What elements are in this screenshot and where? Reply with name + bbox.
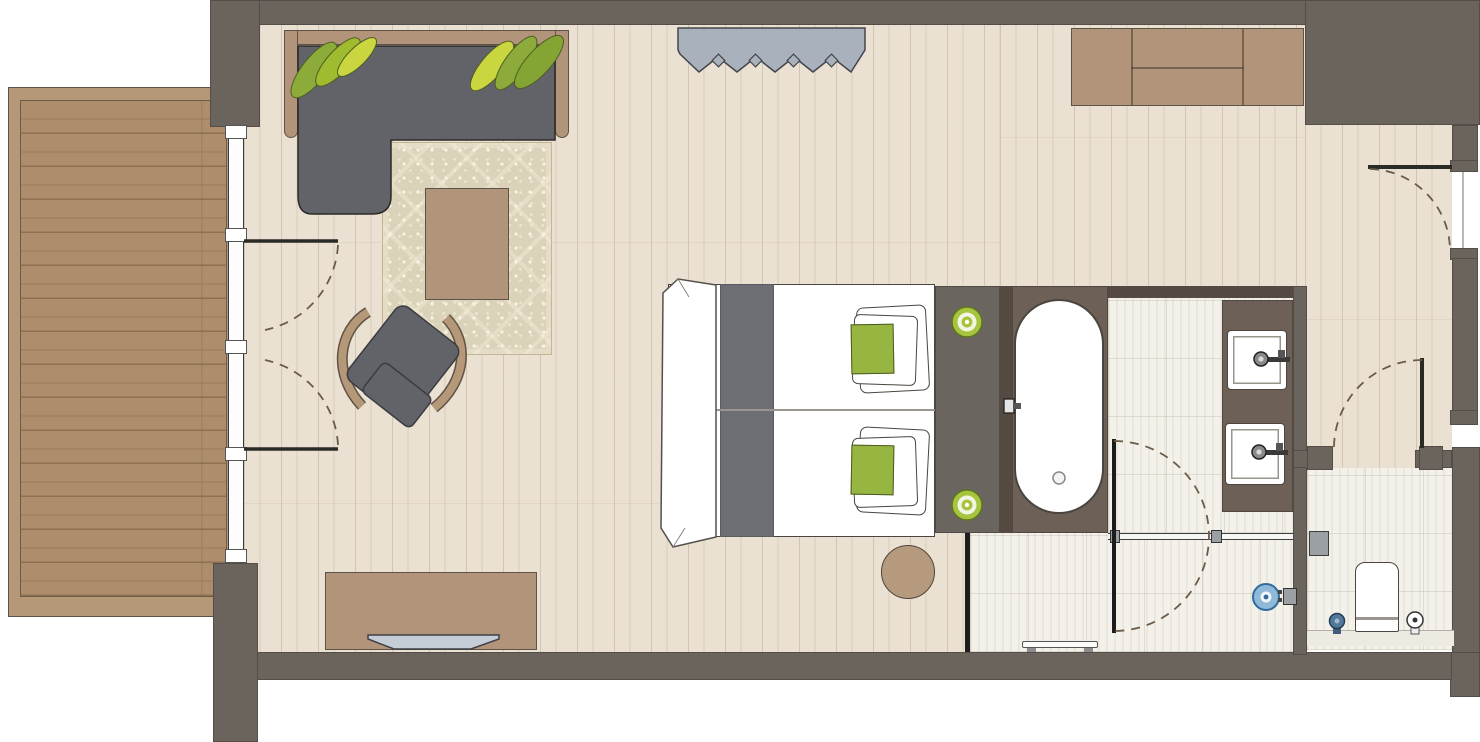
lamp-center: [965, 503, 969, 507]
drain-center: [1264, 595, 1269, 600]
floor-plan: [0, 0, 1480, 742]
curtain-body: [678, 28, 865, 72]
brush-center: [1413, 618, 1418, 623]
reading-light: [952, 490, 982, 520]
toilet-brush: [1407, 612, 1423, 634]
sink-faucet: [1252, 443, 1288, 459]
toilet-paper-holder: [1330, 614, 1345, 635]
reading-light: [952, 307, 982, 337]
faucet-knob-center: [1256, 449, 1261, 454]
shower-drain: [1253, 584, 1279, 610]
sink-faucet: [1254, 350, 1290, 366]
bed-blanket: [661, 279, 716, 547]
shower-control-knob: [1278, 590, 1282, 594]
balcony-door-arc: [265, 360, 338, 445]
faucet-valve: [1278, 350, 1285, 358]
curtain: [678, 28, 865, 72]
tub-faucet: [1004, 399, 1014, 413]
faucet-valve: [1276, 443, 1283, 451]
faucet-knob-center: [1258, 356, 1263, 361]
blanket-shape: [661, 279, 716, 547]
entrance-door-arc: [1370, 169, 1450, 249]
lounge-chair: [342, 302, 462, 429]
tv: [368, 635, 499, 649]
tp-roll-center: [1335, 619, 1340, 624]
plan-overlay: [0, 0, 1480, 742]
tub-drain: [1053, 472, 1065, 484]
wc-door-arc: [1334, 360, 1422, 448]
tub-faucet-lever: [1013, 403, 1021, 409]
shower-control-knob: [1278, 598, 1282, 602]
lamp-center: [965, 320, 969, 324]
bathroom-door-arc: [1114, 441, 1209, 631]
balcony-door-arc: [265, 245, 338, 330]
